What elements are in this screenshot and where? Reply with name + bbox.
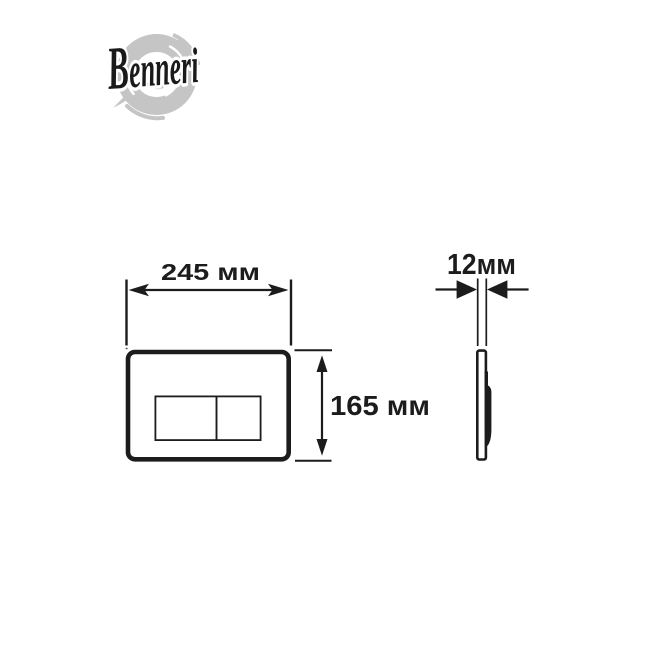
svg-text:12мм: 12мм — [447, 248, 516, 280]
svg-text:245 мм: 245 мм — [161, 259, 260, 285]
svg-text:165 мм: 165 мм — [330, 390, 430, 421]
svg-text:Benneri: Benneri — [104, 29, 201, 103]
